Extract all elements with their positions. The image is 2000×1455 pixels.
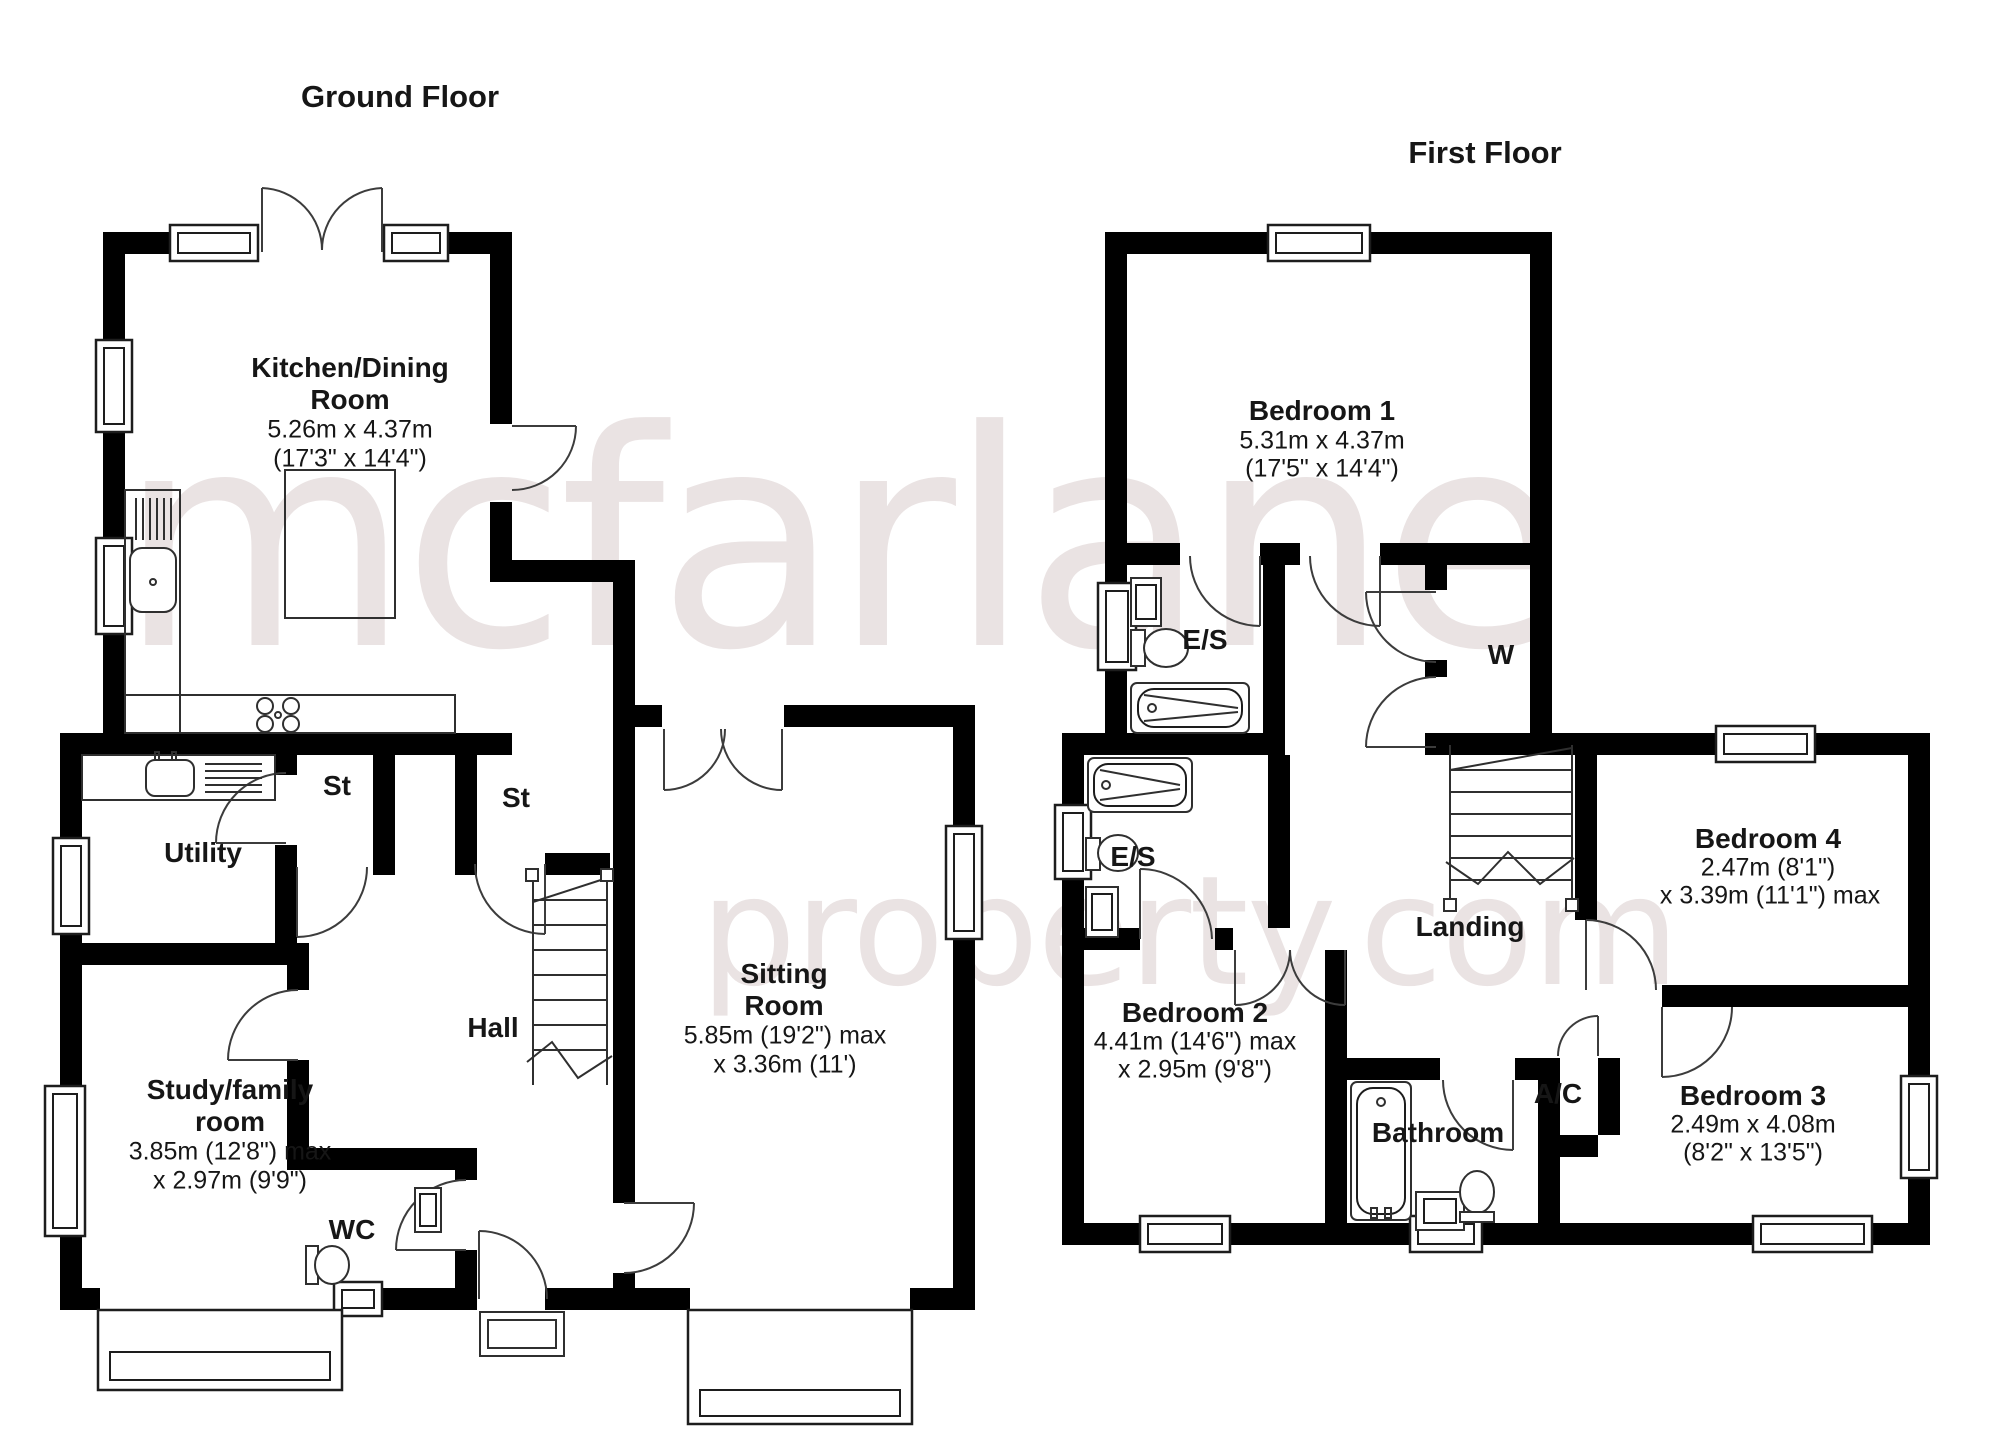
- label-bed1-name: Bedroom 1: [1249, 395, 1395, 427]
- label-es1: E/S: [1182, 624, 1227, 656]
- label-kitchen-dim1: 5.26m x 4.37m: [267, 416, 432, 445]
- label-es2: E/S: [1110, 841, 1155, 873]
- label-bed1-dim1: 5.31m x 4.37m: [1239, 427, 1404, 456]
- label-bathroom: Bathroom: [1372, 1117, 1504, 1149]
- label-ac: A/C: [1534, 1078, 1582, 1110]
- label-sitting-dim2: x 3.36m (11'): [713, 1051, 856, 1080]
- label-sitting-dim1: 5.85m (19'2") max: [684, 1022, 887, 1051]
- label-study-dim1: 3.85m (12'8") max: [129, 1138, 332, 1167]
- label-study-name2: room: [195, 1106, 265, 1138]
- label-kitchen-dim2: (17'3" x 14'4"): [273, 445, 427, 474]
- label-utility: Utility: [164, 837, 242, 869]
- label-bed4-name: Bedroom 4: [1695, 823, 1841, 855]
- label-study-dim2: x 2.97m (9'9"): [153, 1167, 307, 1196]
- label-study-name1: Study/family: [147, 1074, 313, 1106]
- label-landing: Landing: [1416, 911, 1525, 943]
- ground-floor-title: Ground Floor: [301, 79, 499, 115]
- label-bed4-dim1: 2.47m (8'1"): [1701, 854, 1836, 883]
- label-bed1-dim2: (17'5" x 14'4"): [1245, 455, 1399, 484]
- label-sitting-name1: Sitting: [740, 958, 827, 990]
- label-bed4-dim2: x 3.39m (11'1") max: [1660, 882, 1880, 911]
- label-bed3-dim1: 2.49m x 4.08m: [1670, 1111, 1835, 1140]
- floor-plan-labels: Ground Floor First Floor Kitchen/Dining …: [0, 0, 2000, 1455]
- label-sitting-name2: Room: [744, 990, 823, 1022]
- label-wc: WC: [329, 1214, 376, 1246]
- label-kitchen-name1: Kitchen/Dining: [251, 352, 449, 384]
- label-bed2-name: Bedroom 2: [1122, 997, 1268, 1029]
- label-wardrobe: W: [1488, 639, 1514, 671]
- floorplan-canvas: mcfarlane property.com: [0, 0, 2000, 1455]
- label-st2: St: [502, 782, 530, 814]
- label-st1: St: [323, 770, 351, 802]
- label-bed3-dim2: (8'2" x 13'5"): [1683, 1139, 1823, 1168]
- label-bed2-dim1: 4.41m (14'6") max: [1094, 1028, 1297, 1057]
- label-bed3-name: Bedroom 3: [1680, 1080, 1826, 1112]
- label-bed2-dim2: x 2.95m (9'8"): [1118, 1056, 1272, 1085]
- label-hall: Hall: [467, 1012, 518, 1044]
- first-floor-title: First Floor: [1408, 135, 1561, 171]
- label-kitchen-name2: Room: [310, 384, 389, 416]
